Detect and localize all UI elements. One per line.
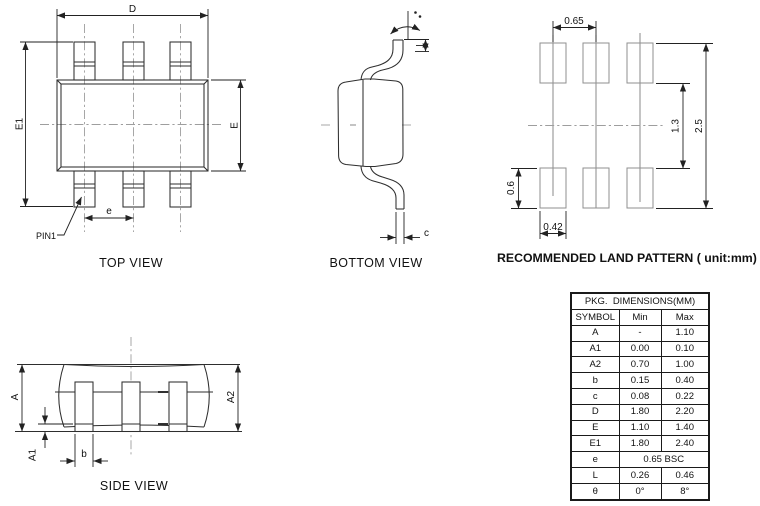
- dim-label-A: A: [10, 393, 21, 400]
- land-pattern-caption: RECOMMENDED LAND PATTERN ( unit:mm): [497, 251, 757, 265]
- top-view-body: [57, 80, 208, 171]
- table-row: L 0.26 0.46: [571, 468, 709, 484]
- table-row: E 1.10 1.40: [571, 420, 709, 436]
- col-header-max: Max: [661, 310, 709, 326]
- table-row: b 0.15 0.40: [571, 373, 709, 389]
- dimension-land-pad-width: 0.42: [540, 211, 566, 239]
- cell-max: 8°: [661, 483, 709, 500]
- dimension-A: A: [10, 365, 22, 432]
- cell-max: 2.40: [661, 436, 709, 452]
- cell-symbol: c: [571, 389, 619, 405]
- land-pattern: 0.65 1.3 2.5 0.6 0.42 RECOMMENDED LAND P…: [497, 16, 757, 265]
- bottom-view-body: [338, 79, 403, 167]
- cell-symbol: e: [571, 452, 619, 468]
- cell-symbol: θ: [571, 483, 619, 500]
- table-row: A2 0.70 1.00: [571, 357, 709, 373]
- dim-label-D: D: [129, 4, 136, 15]
- pin1-callout: PIN1: [36, 197, 82, 241]
- dimension-land-inner-gap: 1.3: [656, 84, 690, 169]
- bottom-view-top-lead: [361, 40, 403, 80]
- table-row: E1 1.80 2.40: [571, 436, 709, 452]
- dim-label-c: c: [424, 228, 429, 239]
- dimension-E: E: [211, 80, 246, 171]
- bottom-view: c BOTTOM VIEW: [321, 11, 429, 270]
- cell-min: 0.00: [619, 341, 661, 357]
- col-header-symbol: SYMBOL: [571, 310, 619, 326]
- cell-min: 1.80: [619, 404, 661, 420]
- dimension-land-pitch: 0.65: [553, 16, 596, 42]
- cell-min: -: [619, 325, 661, 341]
- dimension-c: c: [380, 212, 429, 244]
- dim-label-A2: A2: [226, 390, 237, 403]
- top-view-caption: TOP VIEW: [99, 256, 163, 270]
- cell-min: 0°: [619, 483, 661, 500]
- table-row: D 1.80 2.20: [571, 404, 709, 420]
- cell-symbol: A1: [571, 341, 619, 357]
- dimension-A1: A1: [28, 407, 74, 461]
- package-outline-drawing-page: D E1 E e PIN1 TOP VIEW: [0, 0, 760, 506]
- bottom-view-bottom-lead: [361, 167, 404, 210]
- cell-symbol: b: [571, 373, 619, 389]
- cell-min: 0.70: [619, 357, 661, 373]
- cell-max: 0.10: [661, 341, 709, 357]
- pin1-label: PIN1: [36, 231, 56, 241]
- side-view-caption: SIDE VIEW: [100, 479, 168, 493]
- table-row: e 0.65 BSC: [571, 452, 709, 468]
- top-view: D E1 E e PIN1 TOP VIEW: [15, 4, 247, 270]
- lead-angle-annotation: [391, 11, 422, 40]
- cell-max: 0.22: [661, 389, 709, 405]
- bottom-view-caption: BOTTOM VIEW: [329, 256, 422, 270]
- table-title-row: PKG. DIMENSIONS(MM): [571, 293, 709, 310]
- dimension-A2: A2: [226, 365, 238, 432]
- dim-label-0-6: 0.6: [506, 181, 517, 195]
- dimension-b: b: [60, 434, 108, 467]
- cell-span-value: 0.65 BSC: [619, 452, 709, 468]
- cell-min: 1.80: [619, 436, 661, 452]
- cell-symbol: L: [571, 468, 619, 484]
- table-title: PKG. DIMENSIONS(MM): [571, 293, 709, 310]
- dim-label-A1: A1: [28, 448, 39, 461]
- side-view-leads: [75, 382, 187, 432]
- cell-max: 0.46: [661, 468, 709, 484]
- dim-label-E: E: [230, 122, 241, 129]
- cell-symbol: E1: [571, 436, 619, 452]
- cell-symbol: A2: [571, 357, 619, 373]
- cell-min: 0.08: [619, 389, 661, 405]
- dim-label-2-5: 2.5: [694, 119, 705, 133]
- cell-min: 0.15: [619, 373, 661, 389]
- cell-max: 1.40: [661, 420, 709, 436]
- cell-max: 1.00: [661, 357, 709, 373]
- table-header-row: SYMBOL Min Max: [571, 310, 709, 326]
- table-row: A1 0.00 0.10: [571, 341, 709, 357]
- side-view: A A2 A1 b SIDE VIEW: [10, 337, 242, 493]
- cell-symbol: E: [571, 420, 619, 436]
- pkg-dimensions-table: PKG. DIMENSIONS(MM) SYMBOL Min Max A - 1…: [570, 292, 710, 501]
- cell-symbol: A: [571, 325, 619, 341]
- table-row: θ 0° 8°: [571, 483, 709, 500]
- top-view-centerlines: [40, 24, 224, 232]
- cell-max: 0.40: [661, 373, 709, 389]
- dim-label-1-3: 1.3: [671, 119, 682, 133]
- cell-min: 0.26: [619, 468, 661, 484]
- dimension-land-outer-span: 2.5: [656, 44, 713, 209]
- dimension-e-pitch: e: [85, 206, 134, 218]
- cell-min: 1.10: [619, 420, 661, 436]
- dim-label-e: e: [106, 206, 112, 217]
- table-row: c 0.08 0.22: [571, 389, 709, 405]
- dimension-land-pad-height: 0.6: [506, 169, 537, 209]
- cell-max: 1.10: [661, 325, 709, 341]
- table-row: A - 1.10: [571, 325, 709, 341]
- dimension-L: [404, 40, 429, 52]
- cell-max: 2.20: [661, 404, 709, 420]
- col-header-min: Min: [619, 310, 661, 326]
- dim-label-0-65: 0.65: [564, 16, 584, 27]
- dim-label-0-42: 0.42: [543, 222, 563, 233]
- cell-symbol: D: [571, 404, 619, 420]
- dim-label-b: b: [81, 449, 87, 460]
- dim-label-E1: E1: [15, 117, 26, 130]
- land-pattern-centerlines: [528, 33, 663, 208]
- dimension-D: D: [57, 4, 208, 78]
